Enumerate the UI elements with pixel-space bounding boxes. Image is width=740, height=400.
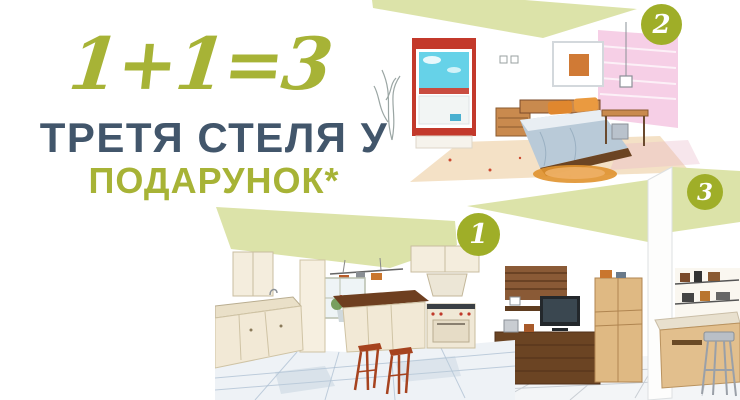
left-cabinets [215,252,325,368]
headline-line1: ТРЕТЯ СТЕЛЯ У [36,117,392,159]
island [333,290,429,352]
equation-headline: 1+1=3 [46,30,353,98]
wall-art-frame [500,42,603,86]
headline-line2: ПОДАРУНОК* [36,163,392,199]
badge-3-label: 3 [697,179,713,206]
bedroom-ceiling-wedge [372,0,637,38]
badge-3-icon: 3 [687,174,723,210]
badge-1-icon: 1 [457,213,500,256]
bedroom-window [412,40,476,148]
badge-1-label: 1 [469,219,488,250]
kitchen-island [655,312,740,388]
tv [540,296,580,331]
badge-2-icon: 2 [641,4,682,45]
badge-2-label: 2 [652,10,670,40]
promo-banner[interactable]: 1+1=3 ТРЕТЯ СТЕЛЯ У ПОДАРУНОК* 1 2 3 [0,0,740,400]
tall-cabinet [595,270,642,382]
